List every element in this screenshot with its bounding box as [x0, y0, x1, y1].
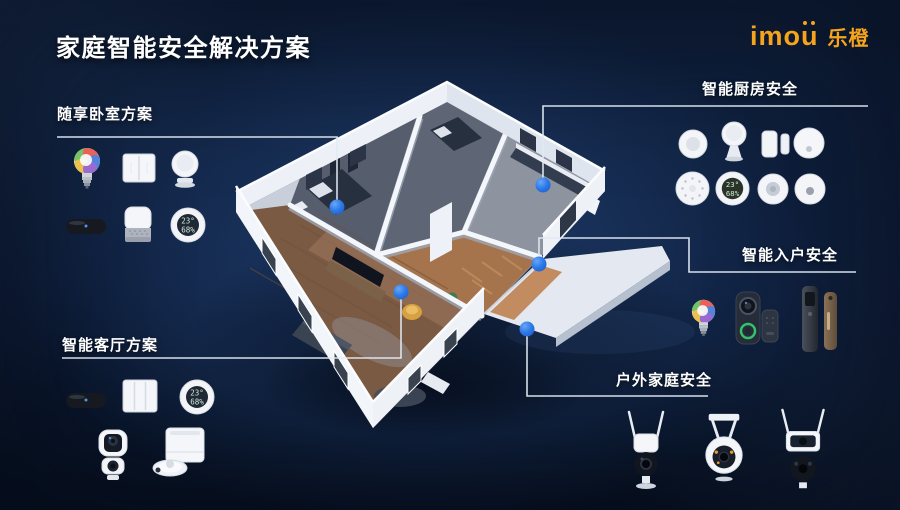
- marker-dot-outdoor: [520, 322, 535, 337]
- imou-logo-text: imou: [750, 23, 819, 50]
- robot-vacuum-icon: [150, 426, 206, 483]
- doorbell-chime-icon: [760, 308, 780, 349]
- smart-bulb-icon: [72, 146, 102, 199]
- wood-planks: [250, 214, 448, 343]
- porch-reflection: [505, 310, 695, 354]
- sensor-temp-reading: 23°: [726, 180, 739, 189]
- water-leak-sensor-icon: [793, 172, 827, 211]
- kitchen-floor: [464, 135, 605, 257]
- sensor-temp-reading: 23°: [181, 217, 195, 226]
- location-markers: [330, 178, 551, 337]
- wireless-button-icon: [677, 128, 709, 165]
- temp-humidity-sensor-icon: 23° 68%: [169, 206, 207, 249]
- outdoor-dome-camera-icon: [698, 412, 750, 505]
- door-window-sensor-icon: [758, 128, 792, 165]
- slide-background: 家庭智能安全解决方案 imou 乐橙 随享卧室方案 智能厨房安全 智能入户安全 …: [0, 0, 900, 510]
- label-living: 智能客厅方案: [62, 334, 158, 355]
- smoke-detector-icon: [674, 170, 711, 212]
- bedroom-a-floor: [290, 116, 420, 255]
- sleep-monitor-icon: [64, 390, 108, 417]
- temp-humidity-display-icon: 23° 68%: [178, 378, 216, 421]
- house-shadow-front: [260, 330, 590, 440]
- label-outdoor: 户外家庭安全: [616, 369, 712, 390]
- temp-humidity-display-icon: 23° 68%: [714, 170, 751, 212]
- sensor-humidity-reading: 68%: [181, 226, 195, 235]
- aroma-night-light-icon: [121, 204, 155, 251]
- gas-detector-icon: [756, 172, 790, 211]
- label-entry: 智能入户安全: [742, 244, 838, 265]
- video-doorbell-icon: [733, 290, 763, 353]
- sensor-temp-reading: 23°: [190, 389, 204, 398]
- hallway-floor: [308, 228, 470, 330]
- logo-umlaut-dots: [811, 21, 815, 25]
- marker-dot-bedroom: [330, 200, 345, 215]
- marker-dot-entry: [532, 257, 547, 272]
- perimeter-walls: [236, 82, 605, 428]
- sensor-humidity-reading: 68%: [190, 398, 204, 407]
- marker-dot-kitchen: [536, 178, 551, 193]
- dual-lens-pt-camera-icon: [93, 428, 133, 487]
- bedroom-b-floor: [376, 102, 505, 255]
- herringbone-pattern: [462, 250, 542, 294]
- floor-slab: [236, 102, 605, 428]
- smart-gateway-icon: [792, 126, 826, 165]
- marker-dot-living: [394, 285, 409, 300]
- smart-bulb-icon: [690, 298, 717, 346]
- pir-motion-sensor-icon: [716, 120, 752, 167]
- dual-lens-outdoor-camera-icon: [776, 408, 830, 503]
- sensor-humidity-reading: 68%: [726, 189, 740, 198]
- smart-door-lock-icon: [796, 284, 846, 361]
- wall-switch-2gang-icon: [121, 152, 157, 189]
- furniture: [292, 117, 600, 407]
- outdoor-ptz-camera-icon: [622, 408, 670, 501]
- indoor-pt-camera-icon: [166, 148, 204, 195]
- living-room-floor: [236, 205, 482, 428]
- brand-logo: imou 乐橙: [750, 22, 870, 51]
- hall-closet: [430, 202, 452, 262]
- house-shadow: [190, 222, 700, 438]
- interior-wall-shadows: [290, 118, 540, 318]
- label-bedroom: 随享卧室方案: [57, 103, 153, 124]
- wall-switch-3gang-icon: [121, 378, 159, 419]
- page-title: 家庭智能安全解决方案: [56, 28, 311, 63]
- sleep-monitor-icon: [64, 216, 108, 243]
- imou-logo-cn: 乐橙: [828, 22, 870, 51]
- interior-walls: [290, 116, 540, 316]
- porch: [484, 246, 670, 347]
- label-kitchen: 智能厨房安全: [702, 78, 798, 99]
- entry-hall-floor: [376, 232, 540, 316]
